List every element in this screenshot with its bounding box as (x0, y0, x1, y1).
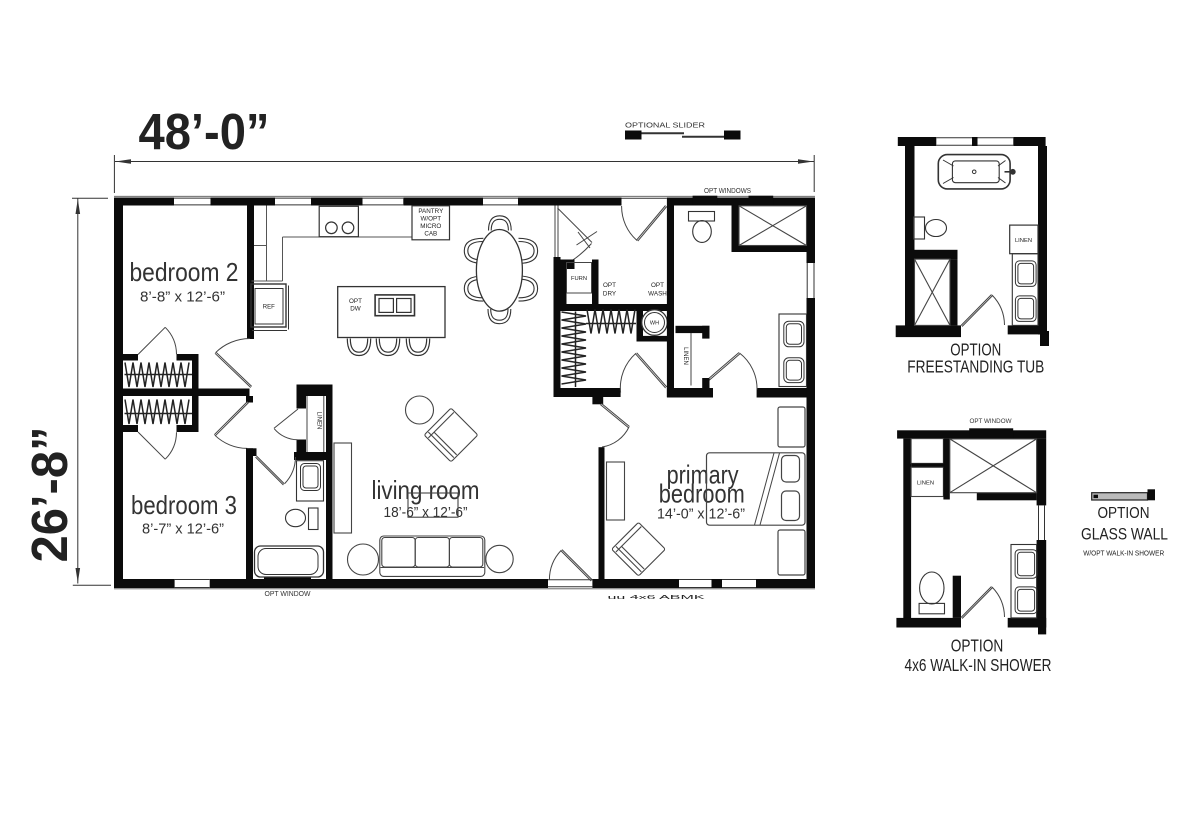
svg-text:W/OPT WALK-IN SHOWER: W/OPT WALK-IN SHOWER (1083, 551, 1164, 558)
svg-text:OPT WINDOW: OPT WINDOW (265, 591, 311, 598)
svg-text:bedroom 2: bedroom 2 (130, 257, 239, 287)
svg-text:LINEN: LINEN (917, 481, 934, 487)
svg-text:OPTION: OPTION (951, 636, 1004, 656)
svg-text:GLASS WALL: GLASS WALL (1081, 525, 1168, 544)
svg-text:48’-0”: 48’-0” (139, 103, 270, 160)
svg-text:OPT: OPT (651, 282, 664, 289)
svg-text:OPT WINDOWS: OPT WINDOWS (704, 188, 751, 195)
svg-text:LINEN: LINEN (682, 347, 688, 365)
svg-text:OPT: OPT (349, 298, 362, 305)
svg-text:LINEN: LINEN (316, 412, 322, 430)
svg-text:PANTRY: PANTRY (418, 208, 444, 215)
svg-text:OPT: OPT (603, 282, 616, 289)
svg-text:DRY: DRY (603, 291, 617, 298)
svg-text:REF: REF (263, 305, 275, 311)
svg-text:LINEN: LINEN (1015, 238, 1032, 244)
svg-text:DW: DW (350, 306, 361, 313)
svg-text:WASH: WASH (648, 291, 667, 298)
svg-text:FURN: FURN (571, 276, 587, 282)
svg-text:OPT WINDOW: OPT WINDOW (970, 418, 1013, 425)
svg-text:14’-0” x 12’-6”: 14’-0” x 12’-6” (657, 506, 745, 523)
svg-text:4x6 WALK-IN SHOWER: 4x6 WALK-IN SHOWER (905, 655, 1052, 675)
svg-text:OPTIONAL SLIDER: OPTIONAL SLIDER (625, 123, 705, 130)
svg-text:living room: living room (372, 475, 480, 505)
svg-text:26’-8”: 26’-8” (21, 427, 78, 563)
svg-text:8’-8” x 12’-6”: 8’-8” x 12’-6” (140, 289, 225, 306)
svg-text:WH: WH (650, 321, 659, 327)
svg-text:18’-6” x 12’-6”: 18’-6” x 12’-6” (384, 504, 468, 521)
svg-text:8’-7” x 12’-6”: 8’-7” x 12’-6” (142, 521, 224, 538)
svg-text:OPTION: OPTION (1098, 505, 1150, 522)
svg-text:FREESTANDING TUB: FREESTANDING TUB (907, 357, 1044, 377)
svg-text:uu 4x6 ABMK: uu 4x6 ABMK (608, 595, 706, 601)
svg-text:MICRO: MICRO (420, 223, 441, 230)
svg-text:bedroom: bedroom (659, 479, 745, 509)
svg-text:CAB: CAB (424, 231, 437, 238)
svg-text:bedroom 3: bedroom 3 (131, 490, 237, 520)
svg-text:W/OPT: W/OPT (420, 216, 441, 223)
